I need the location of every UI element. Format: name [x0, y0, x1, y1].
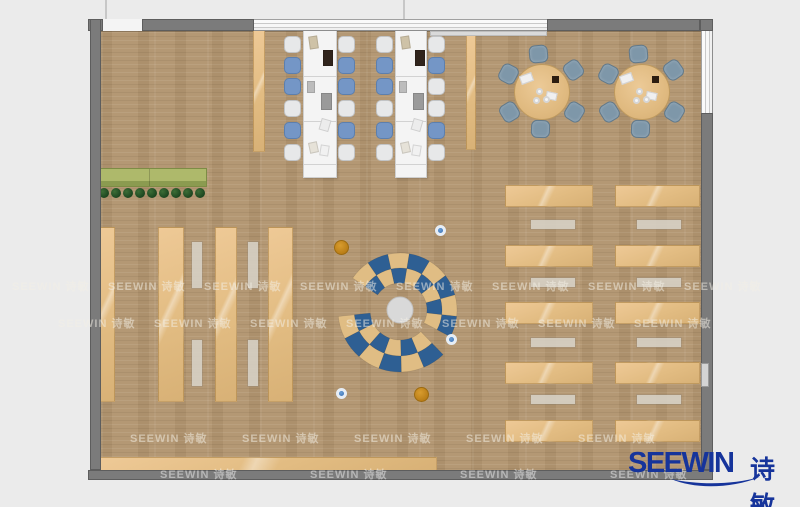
- table-chair-blue: [338, 122, 355, 139]
- table-chair-blue: [284, 78, 301, 95]
- study-desk: [505, 420, 593, 442]
- bottom-bench: [100, 457, 437, 471]
- plant-icon: [147, 188, 157, 198]
- table-divider: [396, 164, 426, 165]
- study-desk: [615, 420, 700, 442]
- table-chair-white: [338, 144, 355, 161]
- table-item: [415, 50, 425, 66]
- table-item: [307, 81, 315, 93]
- shelf-bench: [192, 242, 202, 288]
- bookshelf: [268, 227, 293, 402]
- table-item: [308, 35, 319, 49]
- study-desk: [615, 302, 700, 324]
- stool-blue: [435, 225, 446, 236]
- table-chair-blue: [428, 122, 445, 139]
- cup-icon: [533, 97, 540, 104]
- cup-icon: [643, 96, 650, 103]
- table-chair-blue: [376, 122, 393, 139]
- exterior-wall-stub: [403, 0, 405, 19]
- table-chair-blue: [376, 57, 393, 74]
- table-chair-blue: [428, 57, 445, 74]
- desk-bench: [531, 220, 575, 229]
- table-chair-white: [338, 36, 355, 53]
- table-chair-white: [428, 36, 445, 53]
- cup-icon: [543, 96, 550, 103]
- table-divider: [304, 76, 336, 77]
- round-table-book: [652, 76, 659, 83]
- shelf-bench: [248, 340, 258, 386]
- table-item: [323, 50, 333, 66]
- table-chair-blue: [338, 57, 355, 74]
- table-chair-blue: [376, 78, 393, 95]
- desk-bench: [531, 278, 575, 287]
- round-table-chair: [531, 120, 551, 139]
- wall: [547, 19, 700, 31]
- table-item: [399, 81, 407, 93]
- wall: [142, 19, 254, 31]
- table-chair-blue: [284, 57, 301, 74]
- study-desk: [505, 185, 593, 207]
- study-desk: [615, 245, 700, 267]
- round-table-chair: [631, 120, 651, 139]
- watermark-text: SEEWIN 诗敏: [12, 278, 89, 294]
- stool-blue: [446, 334, 457, 345]
- wall: [700, 19, 713, 31]
- logo-chinese-text: 诗敏: [750, 450, 798, 507]
- table-chair-white: [376, 36, 393, 53]
- round-table-chair: [528, 44, 548, 64]
- shelf-bench: [192, 340, 202, 386]
- desk-bench: [531, 395, 575, 404]
- round-table-book: [552, 76, 559, 83]
- desk-bench: [637, 220, 681, 229]
- window-sill: [430, 31, 547, 36]
- logo-swoosh-icon: [670, 476, 762, 489]
- stool-blue: [336, 388, 347, 399]
- plant-icon: [183, 188, 193, 198]
- door-opening: [103, 19, 142, 31]
- table-chair-white: [284, 144, 301, 161]
- side-bench: [466, 35, 476, 150]
- table-divider: [304, 164, 336, 165]
- study-desk: [615, 362, 700, 384]
- desk-bench: [637, 395, 681, 404]
- plant-icon: [135, 188, 145, 198]
- round-table-chair: [628, 44, 648, 64]
- exterior-wall-stub: [105, 0, 107, 19]
- plant-icon: [171, 188, 181, 198]
- desk-bench: [637, 338, 681, 347]
- study-desk: [505, 245, 593, 267]
- table-divider: [396, 76, 426, 77]
- shelf-bench: [248, 242, 258, 288]
- window-right: [701, 31, 713, 113]
- table-chair-white: [376, 100, 393, 117]
- table-item: [321, 93, 332, 110]
- study-desk: [505, 362, 593, 384]
- table-item: [319, 118, 332, 132]
- desk-bench: [531, 338, 575, 347]
- stool-orange: [334, 240, 349, 255]
- window-top: [254, 19, 547, 31]
- cup-icon: [633, 97, 640, 104]
- seewin-logo: SEEWIN 诗敏: [628, 445, 798, 490]
- table-chair-white: [428, 78, 445, 95]
- wall: [90, 19, 101, 470]
- stool-orange: [414, 387, 429, 402]
- table-chair-white: [428, 144, 445, 161]
- cup-icon: [536, 88, 543, 95]
- floorplan-canvas: SEEWIN 诗敏SEEWIN 诗敏SEEWIN 诗敏SEEWIN 诗敏SEEW…: [0, 0, 800, 507]
- wall: [88, 470, 713, 480]
- table-item: [400, 35, 411, 49]
- scene-layer: SEEWIN 诗敏SEEWIN 诗敏SEEWIN 诗敏SEEWIN 诗敏SEEW…: [0, 0, 800, 507]
- table-item: [319, 144, 330, 156]
- table-chair-blue: [284, 122, 301, 139]
- bookshelf: [215, 227, 237, 402]
- bookshelf: [158, 227, 184, 402]
- table-chair-white: [284, 100, 301, 117]
- table-chair-white: [428, 100, 445, 117]
- planter-divider: [149, 169, 150, 186]
- right-wall-door: [701, 363, 709, 387]
- table-item: [411, 118, 424, 132]
- planter-box: [100, 168, 207, 187]
- cup-icon: [636, 88, 643, 95]
- table-chair-blue: [338, 78, 355, 95]
- plant-icon: [123, 188, 133, 198]
- table-item: [411, 144, 422, 156]
- desk-bench: [637, 278, 681, 287]
- wall: [701, 113, 713, 470]
- long-table: [303, 30, 337, 178]
- table-item: [308, 141, 319, 154]
- study-desk: [615, 185, 700, 207]
- side-bench: [253, 30, 265, 152]
- plant-icon: [159, 188, 169, 198]
- study-desk: [505, 302, 593, 324]
- table-item: [400, 141, 411, 154]
- plant-icon: [111, 188, 121, 198]
- plant-icon: [195, 188, 205, 198]
- table-chair-white: [284, 36, 301, 53]
- table-chair-white: [338, 100, 355, 117]
- table-item: [413, 93, 424, 110]
- table-chair-white: [376, 144, 393, 161]
- long-table: [395, 30, 427, 178]
